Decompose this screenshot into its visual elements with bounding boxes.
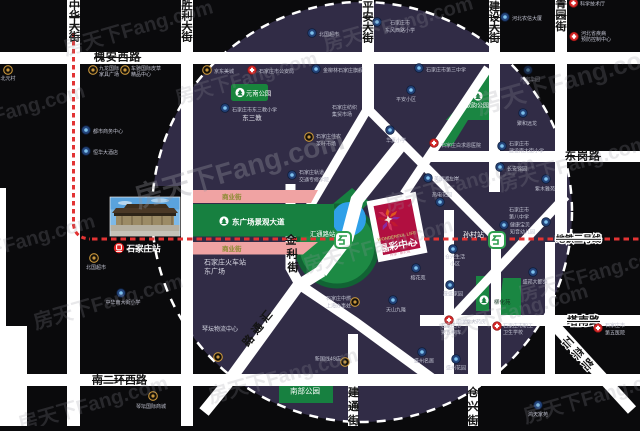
svg-text:北国超市: 北国超市 bbox=[86, 264, 106, 271]
svg-text:集贸市场: 集贸市场 bbox=[332, 111, 352, 118]
svg-text:琴坛国际商城: 琴坛国际商城 bbox=[136, 403, 166, 410]
svg-text:地铁三号线: 地铁三号线 bbox=[556, 233, 601, 244]
svg-text:南部公园: 南部公园 bbox=[290, 386, 320, 396]
svg-text:建: 建 bbox=[348, 385, 360, 399]
svg-text:家具广场: 家具广场 bbox=[99, 71, 119, 78]
svg-text:街: 街 bbox=[287, 260, 299, 274]
svg-text:石家庄市: 石家庄市 bbox=[509, 207, 529, 214]
svg-text:紫木雅苑: 紫木雅苑 bbox=[535, 186, 555, 193]
svg-text:元南公园: 元南公园 bbox=[246, 89, 271, 98]
svg-text:仓兴生活: 仓兴生活 bbox=[445, 254, 465, 261]
svg-text:石家庄中燃: 石家庄中燃 bbox=[326, 295, 351, 302]
svg-text:科学技术厅: 科学技术厅 bbox=[580, 1, 605, 8]
svg-text:华夏小学: 华夏小学 bbox=[386, 137, 406, 144]
svg-text:石家庄白求恩医院: 石家庄白求恩医院 bbox=[441, 142, 481, 149]
svg-text:街: 街 bbox=[181, 30, 193, 44]
svg-text:金柳林石家庄旗舰: 金柳林石家庄旗舰 bbox=[323, 67, 363, 74]
svg-text:石家庄轨道: 石家庄轨道 bbox=[299, 169, 324, 176]
svg-text:街: 街 bbox=[467, 413, 479, 426]
svg-text:平安小区: 平安小区 bbox=[396, 96, 416, 103]
svg-text:街: 街 bbox=[488, 31, 500, 45]
svg-text:金: 金 bbox=[285, 233, 298, 247]
svg-text:园: 园 bbox=[556, 9, 567, 22]
svg-text:街: 街 bbox=[555, 19, 567, 33]
svg-text:恒华大酒店: 恒华大酒店 bbox=[93, 149, 118, 156]
svg-text:晟盛家园: 晟盛家园 bbox=[443, 291, 463, 298]
svg-text:东广场景观大道: 东广场景观大道 bbox=[232, 217, 285, 227]
svg-text:预防控制中心: 预防控制中心 bbox=[581, 36, 611, 43]
svg-text:仓: 仓 bbox=[467, 385, 480, 399]
svg-text:健康宝贝: 健康宝贝 bbox=[510, 222, 530, 229]
svg-text:利: 利 bbox=[287, 247, 298, 261]
svg-text:盛州名居: 盛州名居 bbox=[414, 358, 434, 365]
svg-text:商业街: 商业街 bbox=[222, 244, 242, 253]
svg-text:榕花苑: 榕花苑 bbox=[410, 275, 425, 282]
svg-text:河北省疾病: 河北省疾病 bbox=[581, 30, 606, 37]
svg-text:槐安西路: 槐安西路 bbox=[93, 50, 141, 64]
svg-text:第八中学: 第八中学 bbox=[509, 214, 529, 221]
svg-text:交通专修学院: 交通专修学院 bbox=[299, 177, 329, 184]
svg-text:石家庄市东三教小学: 石家庄市东三教小学 bbox=[232, 107, 277, 114]
svg-text:上海办事处: 上海办事处 bbox=[326, 303, 351, 310]
svg-text:河北农信大厦: 河北农信大厦 bbox=[512, 15, 542, 22]
svg-text:街: 街 bbox=[347, 413, 359, 426]
svg-text:东三教: 东三教 bbox=[242, 113, 262, 122]
svg-text:商业街: 商业街 bbox=[222, 192, 242, 201]
svg-text:车驰国际皮草: 车驰国际皮草 bbox=[131, 65, 161, 72]
svg-text:天山九隆: 天山九隆 bbox=[386, 307, 406, 314]
svg-text:孙村站: 孙村站 bbox=[463, 230, 484, 239]
svg-text:汇通路站: 汇通路站 bbox=[310, 229, 336, 238]
svg-text:石家庄站: 石家庄站 bbox=[126, 244, 162, 254]
svg-text:东广场: 东广场 bbox=[204, 267, 225, 276]
svg-text:石家庄市: 石家庄市 bbox=[605, 322, 625, 329]
svg-text:小区: 小区 bbox=[450, 261, 460, 268]
svg-text:聚和远龙: 聚和远龙 bbox=[517, 120, 537, 127]
svg-text:精品中心: 精品中心 bbox=[131, 71, 151, 78]
svg-text:九龙国际: 九龙国际 bbox=[99, 65, 119, 72]
svg-text:青: 青 bbox=[556, 0, 567, 10]
svg-text:琴坛物流中心: 琴坛物流中心 bbox=[202, 325, 238, 333]
svg-text:卫生学校: 卫生学校 bbox=[503, 329, 523, 336]
svg-text:盛州花园: 盛州花园 bbox=[446, 365, 466, 372]
svg-text:知音幼儿园: 知音幼儿园 bbox=[510, 229, 535, 236]
svg-text:第五医院: 第五医院 bbox=[605, 330, 625, 337]
svg-text:石家庄市第三中学: 石家庄市第三中学 bbox=[426, 67, 466, 74]
svg-text:北元村: 北元村 bbox=[0, 75, 15, 82]
svg-text:石家庄市: 石家庄市 bbox=[509, 141, 529, 148]
svg-text:石家庄火车站: 石家庄火车站 bbox=[204, 258, 246, 267]
svg-text:都市商务中心: 都市商务中心 bbox=[93, 128, 123, 135]
svg-text:通: 通 bbox=[348, 400, 359, 413]
svg-text:石家庄纺织: 石家庄纺织 bbox=[332, 104, 357, 111]
svg-text:兴: 兴 bbox=[468, 399, 479, 413]
